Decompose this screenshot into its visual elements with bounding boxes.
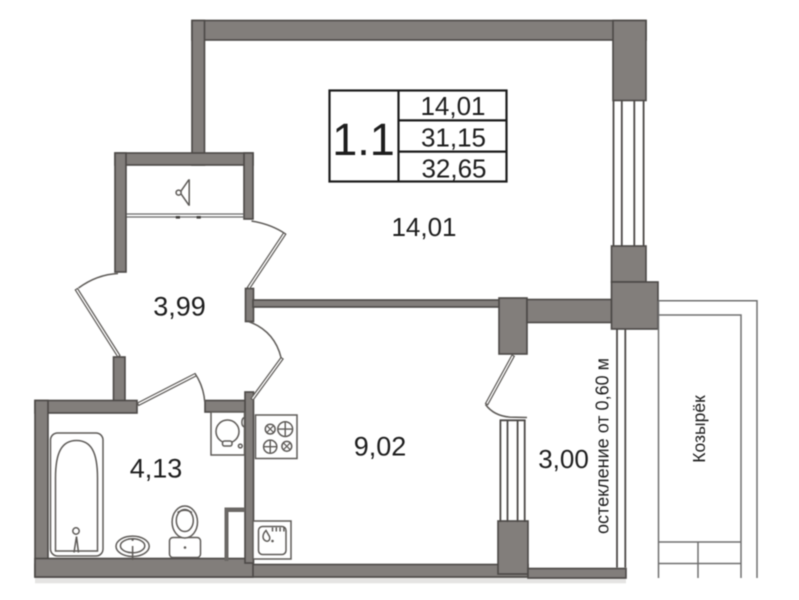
- svg-text:остекление от 0,60 м: остекление от 0,60 м: [593, 358, 613, 534]
- svg-text:1.1: 1.1: [332, 114, 395, 165]
- svg-text:9,02: 9,02: [354, 432, 407, 462]
- svg-text:3,99: 3,99: [153, 292, 206, 322]
- svg-text:14,01: 14,01: [391, 212, 456, 242]
- svg-text:31,15: 31,15: [421, 123, 486, 153]
- svg-text:3,00: 3,00: [538, 444, 589, 474]
- svg-text:4,13: 4,13: [130, 454, 183, 484]
- svg-text:14,01: 14,01: [420, 91, 485, 121]
- svg-text:Козырёк: Козырёк: [689, 395, 709, 463]
- svg-text:32,65: 32,65: [421, 154, 486, 184]
